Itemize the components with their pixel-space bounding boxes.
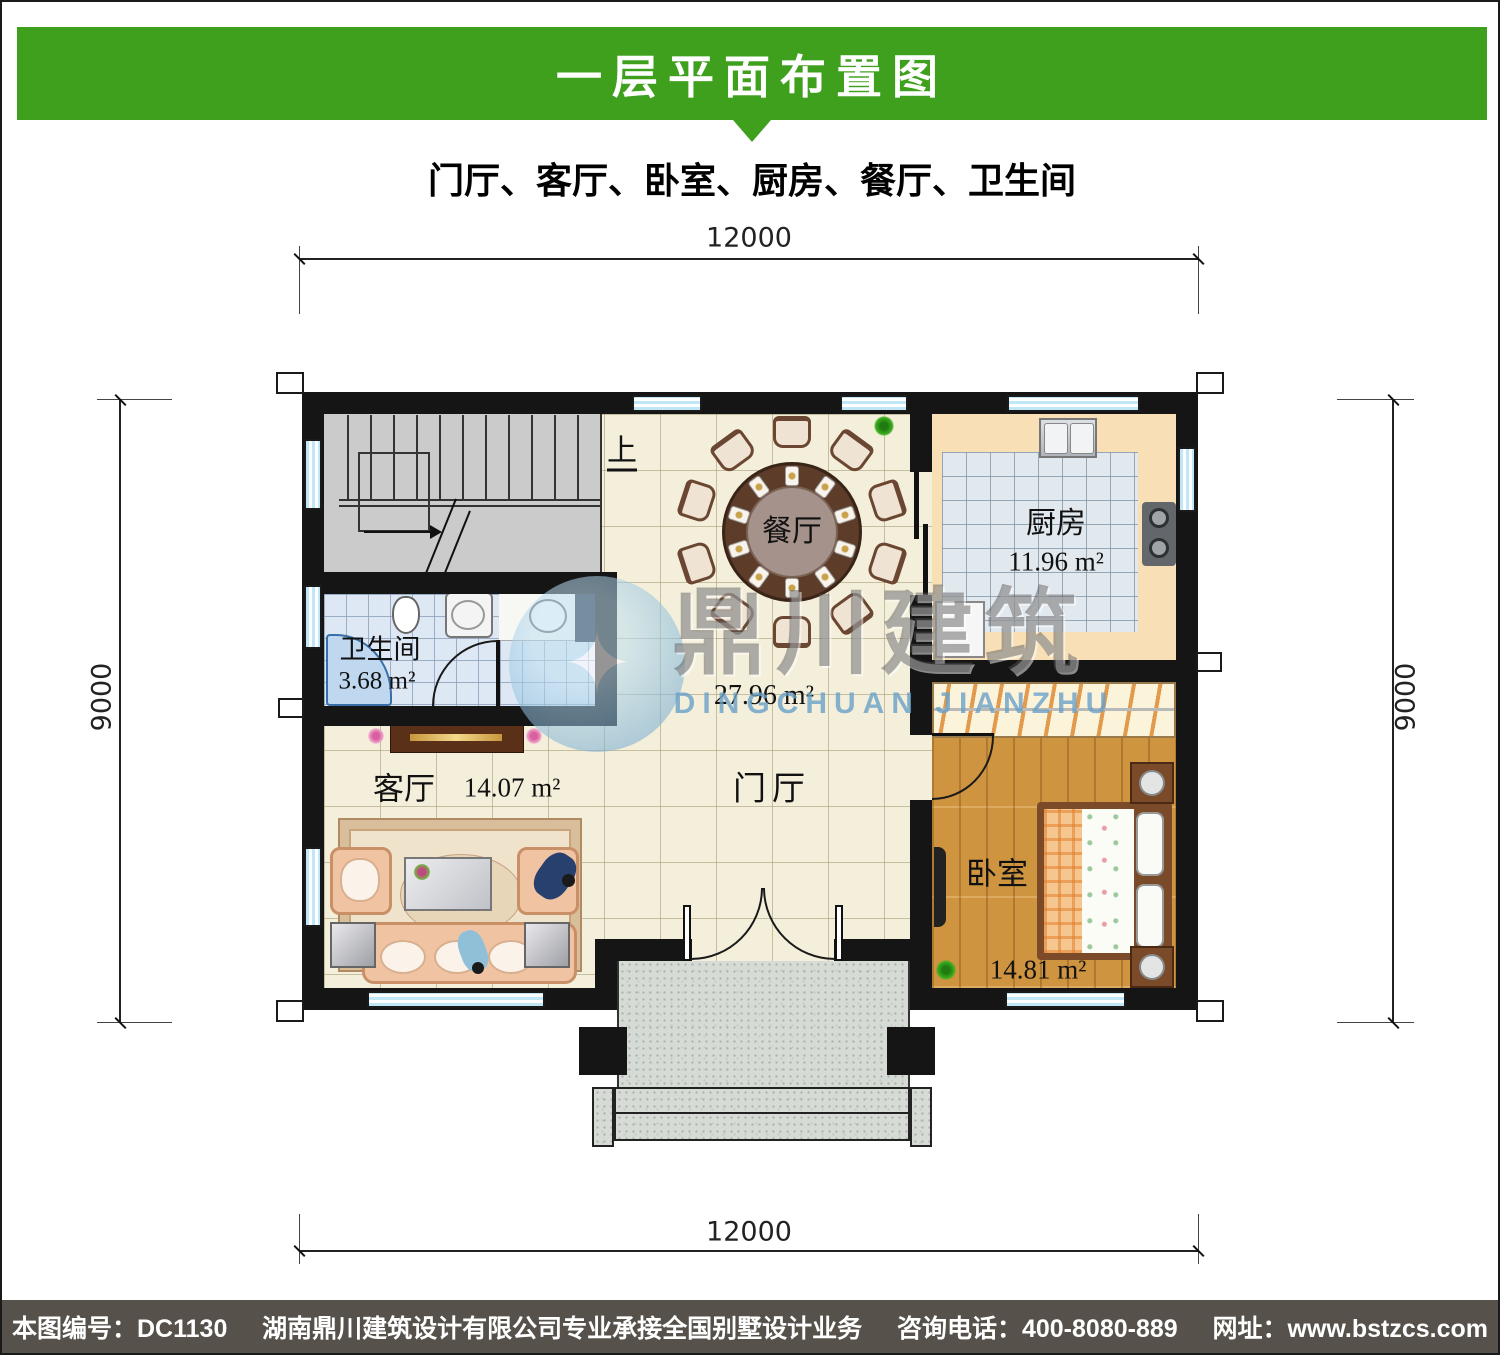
bathroom-area: 3.68 m² <box>339 669 416 694</box>
toilet-fixture <box>392 596 420 634</box>
footer-website: 网址：www.bstzcs.com <box>1212 1309 1488 1345</box>
wall-hall-kitchen <box>910 414 932 472</box>
footer-drawing-no: 本图编号：DC1130 <box>12 1309 227 1345</box>
bed-blanket <box>1044 809 1082 953</box>
flower-icon <box>414 864 430 880</box>
porch-step <box>614 1114 910 1141</box>
side-table <box>524 922 570 968</box>
wall-hall-bedroom <box>910 800 932 1010</box>
plant-icon <box>874 416 894 436</box>
stair-void <box>358 452 430 532</box>
stair-arrow <box>364 531 432 533</box>
page-title: 一层平面布置图 <box>556 41 948 107</box>
floor-plan-page: 一层平面布置图 门厅、客厅、卧室、厨房、餐厅、卫生间 12000 12000 9… <box>0 0 1500 1355</box>
dim-bottom-line <box>299 1250 1199 1252</box>
window <box>1005 991 1126 1008</box>
dim-left: 9000 <box>87 663 118 732</box>
watermark-cn: 鼎川建筑 <box>672 587 1088 681</box>
bedroom-label: 卧室 <box>966 859 1028 890</box>
living-label: 客厅 <box>373 774 435 805</box>
window <box>1007 395 1140 412</box>
kitchen-label: 厨房 <box>1026 509 1086 539</box>
dim-right: 9000 <box>1391 663 1422 732</box>
entry-door-leaf <box>683 905 691 961</box>
dim-right-line <box>1392 399 1394 1023</box>
kitchen-area: 11.96 m² <box>1008 549 1104 576</box>
window <box>304 847 322 927</box>
window <box>840 395 908 412</box>
dining-label: 餐厅 <box>762 517 822 547</box>
window <box>367 991 545 1008</box>
bathroom-label: 卫生间 <box>340 637 421 664</box>
stair-direction-label: 上 <box>607 437 637 472</box>
title-banner: 一层平面布置图 <box>17 27 1487 120</box>
watermark-logo: ✦ <box>509 576 685 752</box>
side-table <box>330 922 376 968</box>
dim-top: 12000 <box>706 223 792 254</box>
star-icon: ✦ <box>561 621 633 707</box>
banner-pointer <box>733 120 771 142</box>
window <box>304 439 322 510</box>
plant-icon <box>936 960 956 980</box>
dim-left-line <box>119 399 121 1023</box>
porch-step <box>614 1087 910 1114</box>
entry-door-leaf <box>835 905 843 961</box>
hall-label: 门厅 <box>733 774 811 807</box>
porch-column <box>887 1027 935 1075</box>
dim-bottom: 12000 <box>706 1217 792 1248</box>
porch <box>617 961 910 1087</box>
porch-column <box>579 1027 627 1075</box>
watermark-en: DINGCHUAN JIANZHU <box>674 689 1115 719</box>
room-list-subtitle: 门厅、客厅、卧室、厨房、餐厅、卫生间 <box>2 152 1500 204</box>
footer-bar: 本图编号：DC1130 湖南鼎川建筑设计有限公司专业承接全国别墅设计业务 咨询电… <box>2 1300 1498 1353</box>
bedroom-area: 14.81 m² <box>990 957 1087 984</box>
pillow <box>1136 812 1164 876</box>
living-area: 14.07 m² <box>464 775 561 802</box>
pillow <box>1136 884 1164 948</box>
window <box>1178 447 1196 512</box>
bedroom-tv <box>934 847 946 927</box>
dim-top-line <box>299 258 1199 260</box>
kitchen-slider <box>914 467 919 539</box>
window <box>304 585 322 649</box>
footer-phone: 咨询电话：400-8080-889 <box>897 1309 1178 1345</box>
window <box>632 395 702 412</box>
flower-icon <box>368 728 384 744</box>
footer-company: 湖南鼎川建筑设计有限公司专业承接全国别墅设计业务 <box>262 1309 862 1345</box>
bed-sheet <box>1082 809 1134 953</box>
